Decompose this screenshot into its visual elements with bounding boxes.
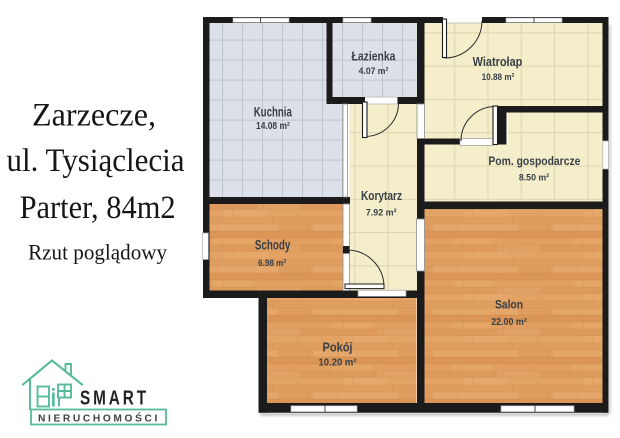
svg-text:Wiatrołap: Wiatrołap bbox=[473, 54, 523, 69]
svg-text:Zarzecze,: Zarzecze, bbox=[32, 98, 156, 134]
svg-text:6.98 m²: 6.98 m² bbox=[258, 258, 286, 269]
svg-text:10.88 m²: 10.88 m² bbox=[482, 72, 515, 83]
svg-text:8.50 m²: 8.50 m² bbox=[519, 173, 549, 184]
svg-text:22.00 m²: 22.00 m² bbox=[491, 317, 527, 328]
svg-text:Salon: Salon bbox=[495, 298, 523, 312]
svg-text:Rzut poglądowy: Rzut poglądowy bbox=[28, 240, 168, 265]
svg-text:Łazienka: Łazienka bbox=[352, 49, 397, 64]
svg-text:14.08 m²: 14.08 m² bbox=[256, 121, 290, 132]
svg-text:7.92 m²: 7.92 m² bbox=[366, 208, 397, 219]
svg-text:4.07 m²: 4.07 m² bbox=[359, 66, 389, 77]
svg-text:ul. Tysiąclecia: ul. Tysiąclecia bbox=[7, 143, 185, 179]
svg-text:Kuchnia: Kuchnia bbox=[254, 104, 293, 119]
svg-text:Schody: Schody bbox=[255, 238, 291, 253]
svg-text:10.20 m²: 10.20 m² bbox=[319, 358, 358, 369]
svg-text:Pom. gospodarcze: Pom. gospodarcze bbox=[488, 154, 580, 168]
svg-text:Korytarz: Korytarz bbox=[361, 189, 402, 203]
svg-text:Parter, 84m2: Parter, 84m2 bbox=[20, 190, 176, 226]
svg-text:NIERUCHOMOŚCI: NIERUCHOMOŚCI bbox=[38, 411, 160, 424]
svg-text:SMART: SMART bbox=[80, 388, 149, 410]
svg-text:Pokój: Pokój bbox=[323, 341, 353, 355]
